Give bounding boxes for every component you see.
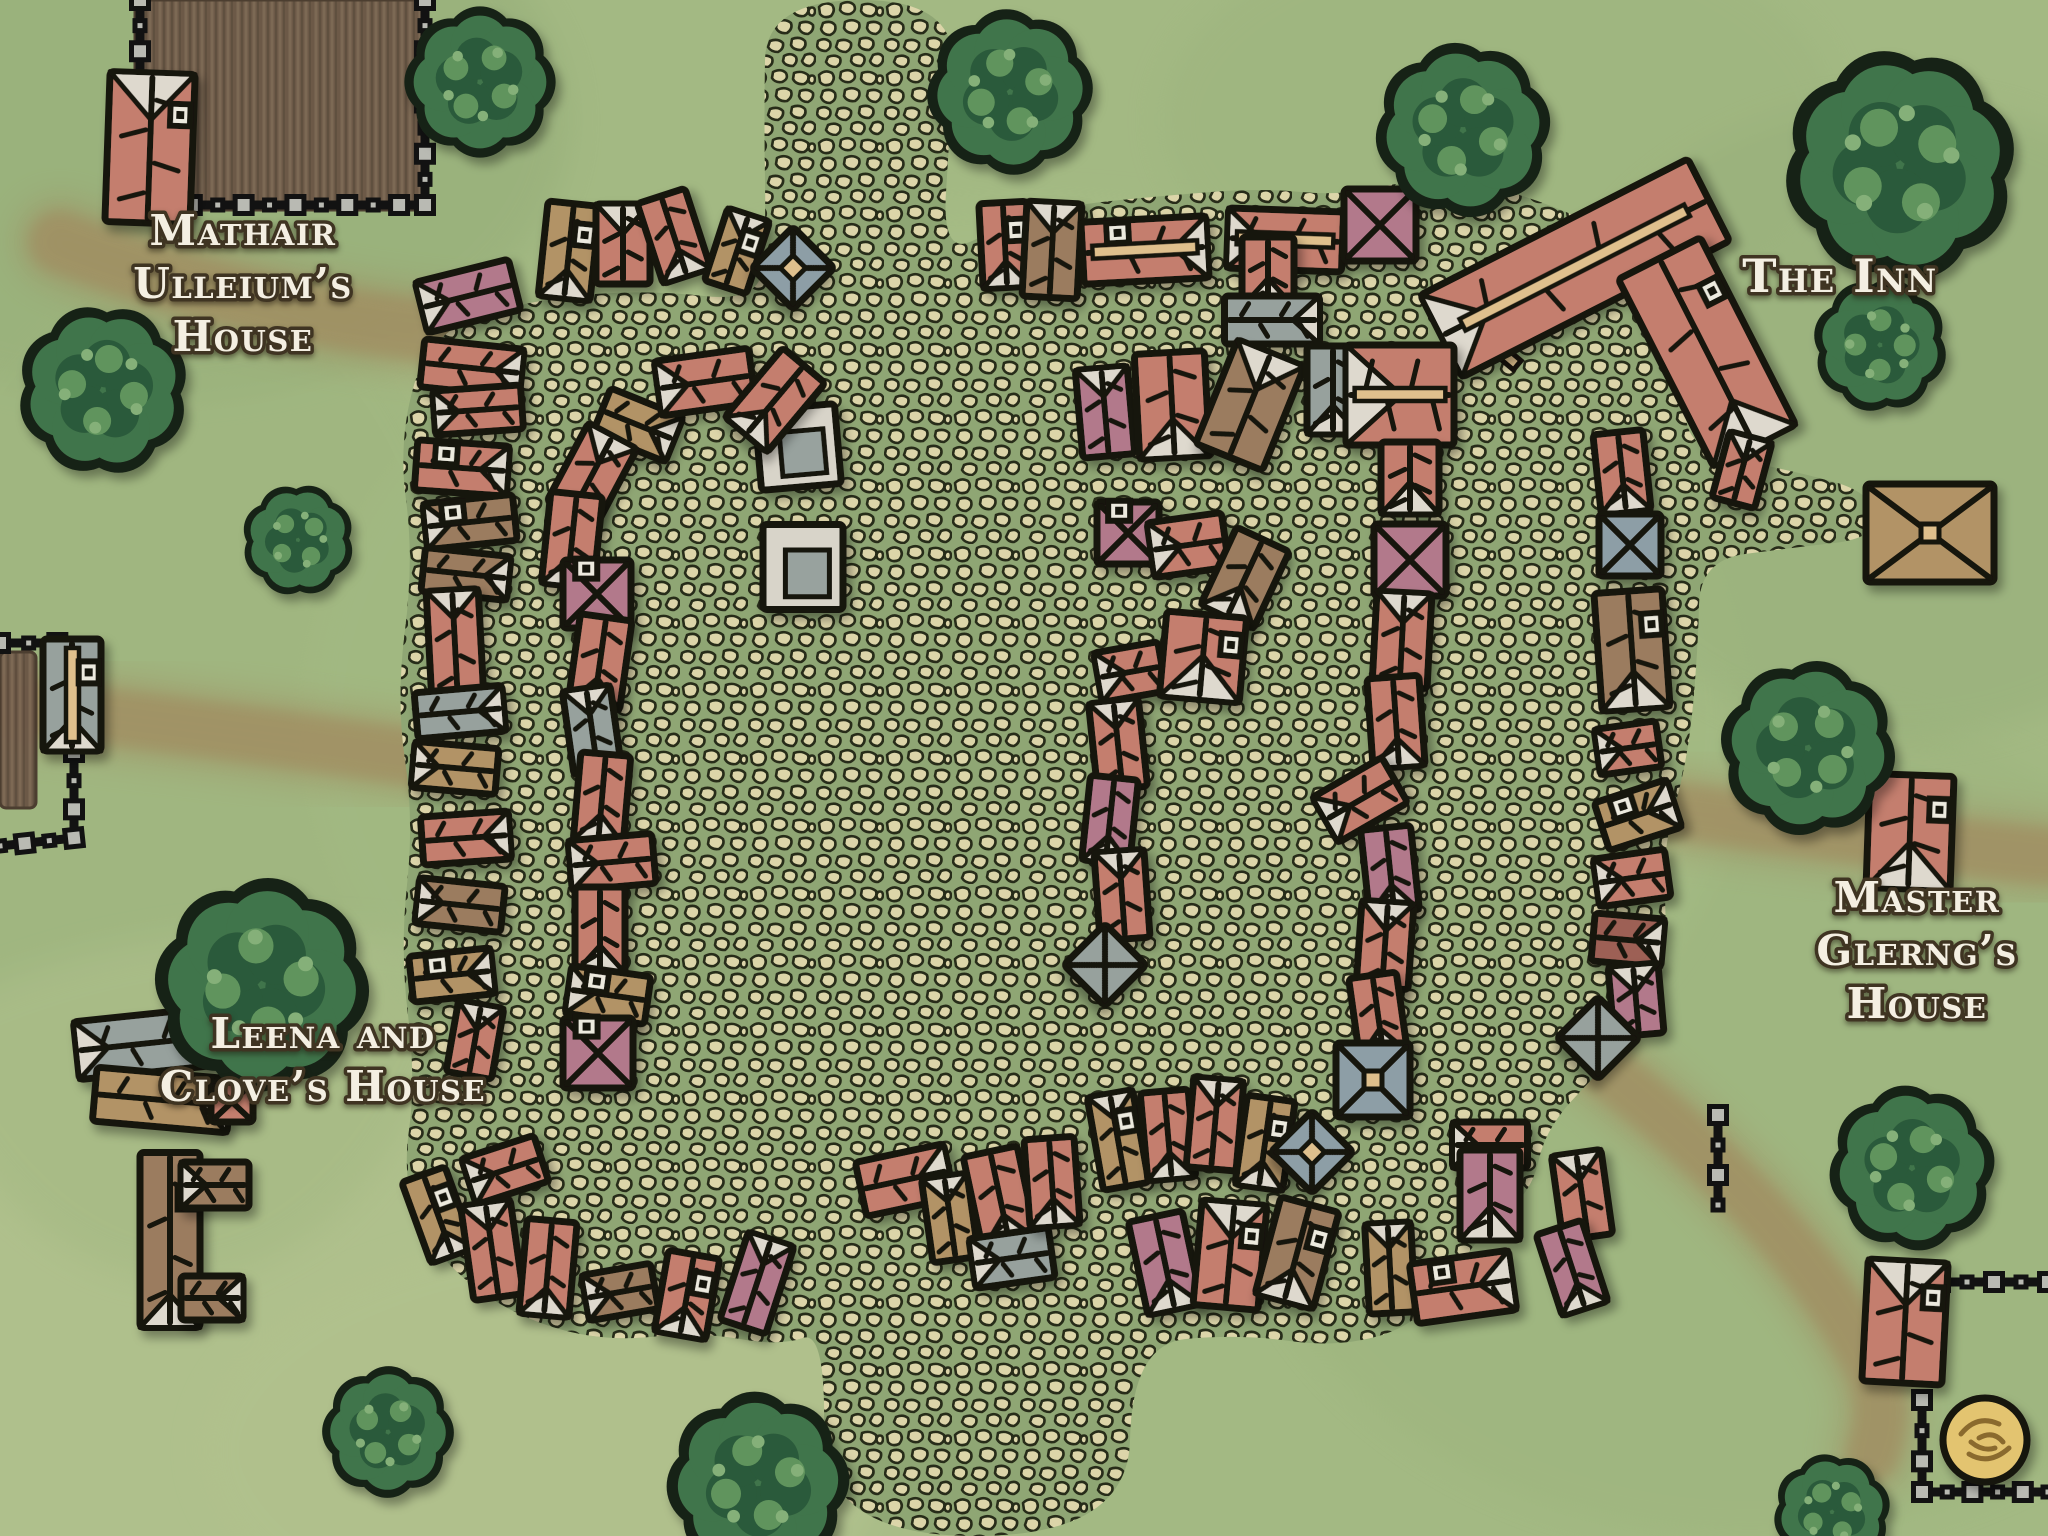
building bbox=[563, 1017, 633, 1088]
building bbox=[414, 685, 506, 738]
building bbox=[105, 72, 195, 225]
map-label-line: Master bbox=[1834, 873, 2001, 922]
building bbox=[1336, 1043, 1410, 1117]
building bbox=[582, 1263, 659, 1320]
building bbox=[1374, 524, 1446, 596]
hay-pile bbox=[1943, 1398, 2027, 1482]
building bbox=[423, 494, 517, 549]
tree bbox=[1376, 43, 1550, 217]
building bbox=[1593, 849, 1671, 907]
building bbox=[1024, 1136, 1080, 1227]
map-label-line: House bbox=[173, 312, 314, 361]
building bbox=[461, 1199, 524, 1300]
building bbox=[1594, 721, 1662, 775]
building bbox=[538, 201, 600, 301]
building bbox=[1591, 913, 1665, 967]
building bbox=[409, 948, 495, 1002]
map-label-line: Leena and bbox=[210, 1009, 435, 1058]
map-label-line: Ulleium’s bbox=[133, 259, 353, 308]
building bbox=[1094, 642, 1167, 703]
building bbox=[1075, 366, 1134, 458]
tree bbox=[404, 6, 555, 157]
farm-field bbox=[0, 652, 36, 808]
building bbox=[654, 1250, 719, 1340]
tree bbox=[322, 1366, 454, 1498]
building bbox=[43, 639, 101, 751]
building bbox=[433, 385, 524, 435]
building bbox=[414, 440, 509, 496]
map-root[interactable]: MathairUlleium’sHouseThe InnMasterGlerng… bbox=[0, 0, 2048, 1536]
building bbox=[1186, 1077, 1244, 1171]
building bbox=[1344, 189, 1416, 261]
building bbox=[1159, 611, 1246, 703]
building bbox=[575, 887, 625, 973]
building bbox=[181, 1276, 243, 1320]
building bbox=[1367, 675, 1425, 768]
map-label-line: House bbox=[1847, 979, 1988, 1028]
building bbox=[1593, 430, 1651, 515]
building bbox=[1346, 345, 1454, 445]
tree bbox=[927, 9, 1093, 175]
village-map-canvas[interactable]: MathairUlleium’sHouseThe InnMasterGlerng… bbox=[0, 0, 2048, 1536]
map-label-line: Mathair bbox=[149, 206, 336, 255]
building bbox=[1409, 1250, 1516, 1323]
map-label-line: Clove’s House bbox=[160, 1062, 486, 1111]
map-label-the-inn: The Inn bbox=[1742, 249, 1937, 303]
building bbox=[519, 1219, 577, 1318]
building bbox=[1460, 1150, 1520, 1240]
building bbox=[1594, 589, 1670, 711]
building bbox=[411, 741, 499, 794]
building bbox=[1381, 442, 1439, 514]
building bbox=[1862, 1259, 1948, 1385]
building bbox=[415, 878, 505, 933]
building bbox=[420, 811, 511, 865]
building bbox=[1081, 216, 1209, 284]
building bbox=[1599, 514, 1661, 576]
tree bbox=[155, 878, 369, 1092]
building bbox=[969, 1228, 1055, 1289]
building bbox=[181, 1162, 249, 1208]
building bbox=[1022, 201, 1082, 299]
building bbox=[1866, 484, 1994, 582]
tree bbox=[1830, 1086, 1995, 1251]
building bbox=[1225, 296, 1320, 344]
building bbox=[763, 525, 843, 610]
building bbox=[568, 833, 656, 890]
map-label-line: The Inn bbox=[1742, 249, 1937, 303]
map-label-line: Glerng’s bbox=[1816, 926, 2017, 975]
building bbox=[573, 752, 630, 844]
